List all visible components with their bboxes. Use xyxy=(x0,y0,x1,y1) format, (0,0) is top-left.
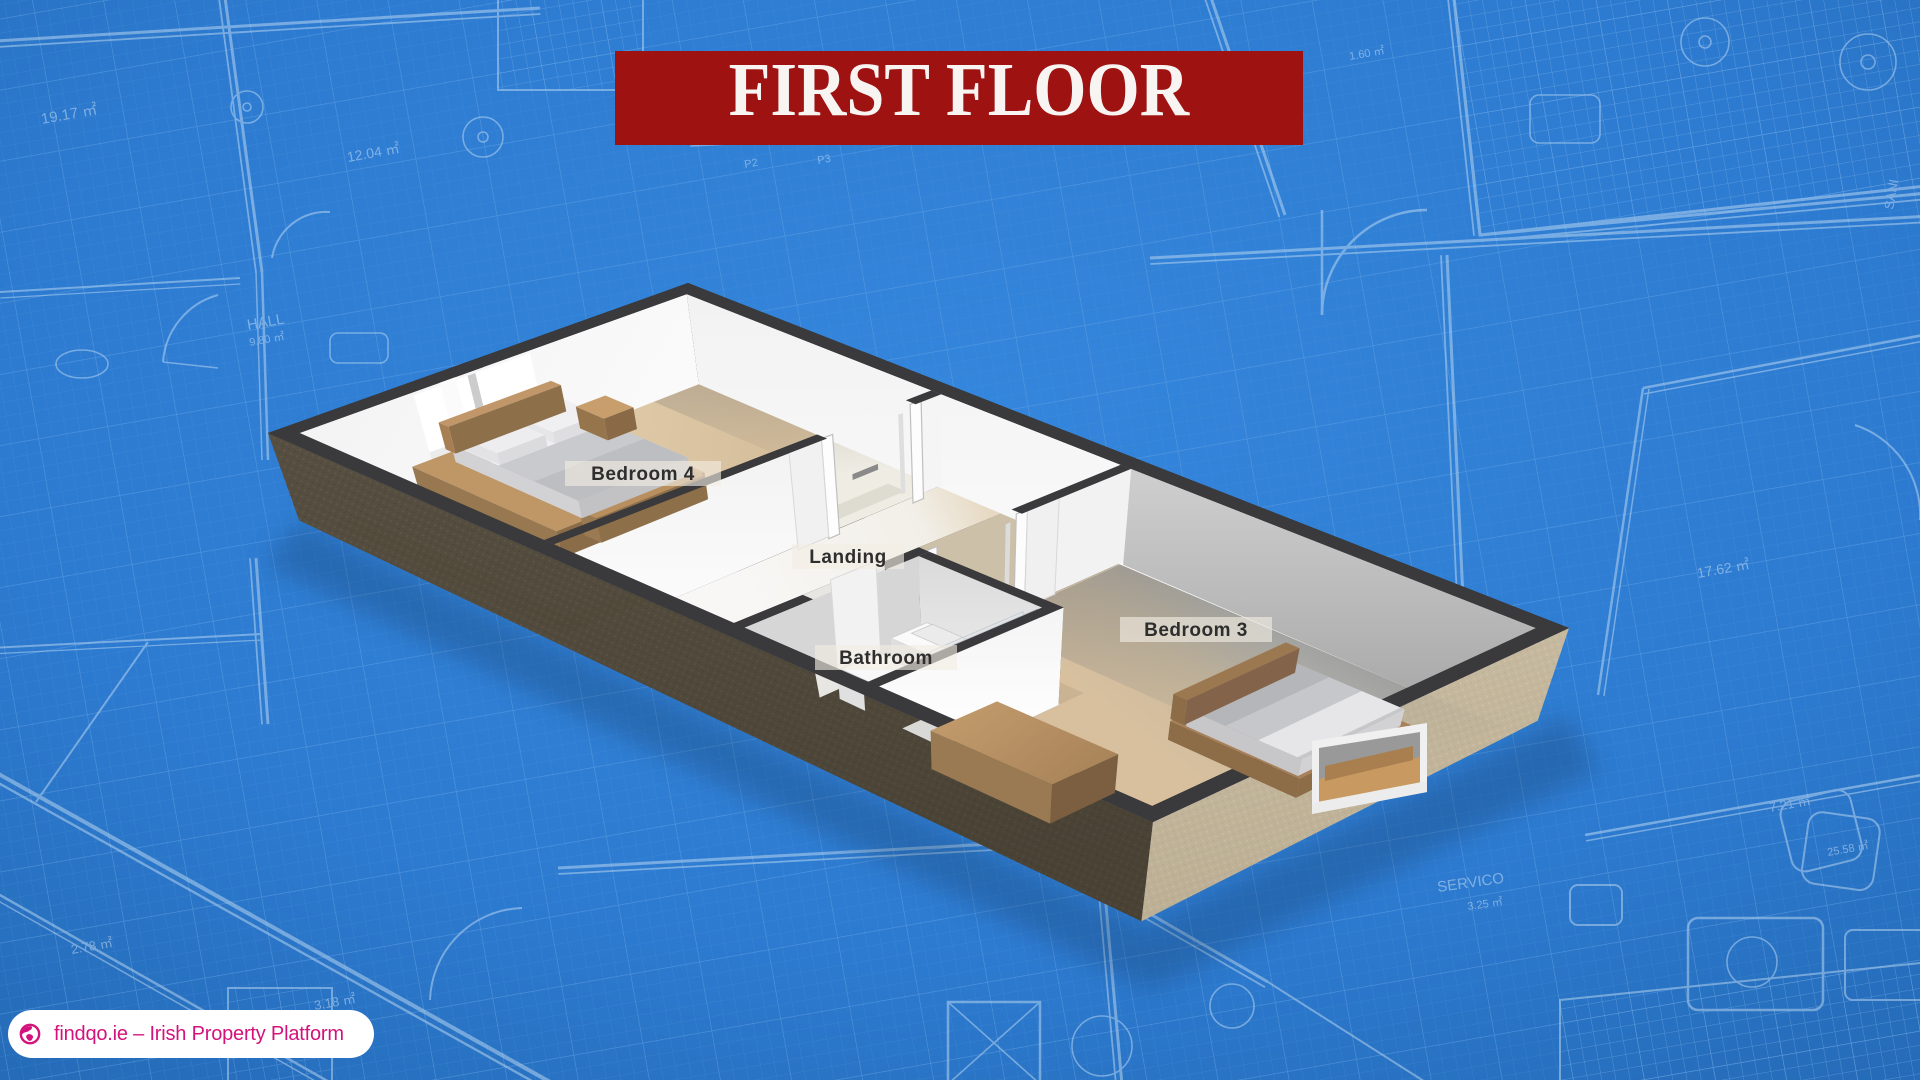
svg-text:P2: P2 xyxy=(743,157,758,171)
svg-text:Bedroom 3: Bedroom 3 xyxy=(1144,620,1248,641)
svg-text:P3: P3 xyxy=(816,153,831,167)
svg-text:Bedroom 4: Bedroom 4 xyxy=(591,464,695,485)
svg-text:Landing: Landing xyxy=(809,547,886,568)
svg-text:Bathroom: Bathroom xyxy=(839,648,933,669)
